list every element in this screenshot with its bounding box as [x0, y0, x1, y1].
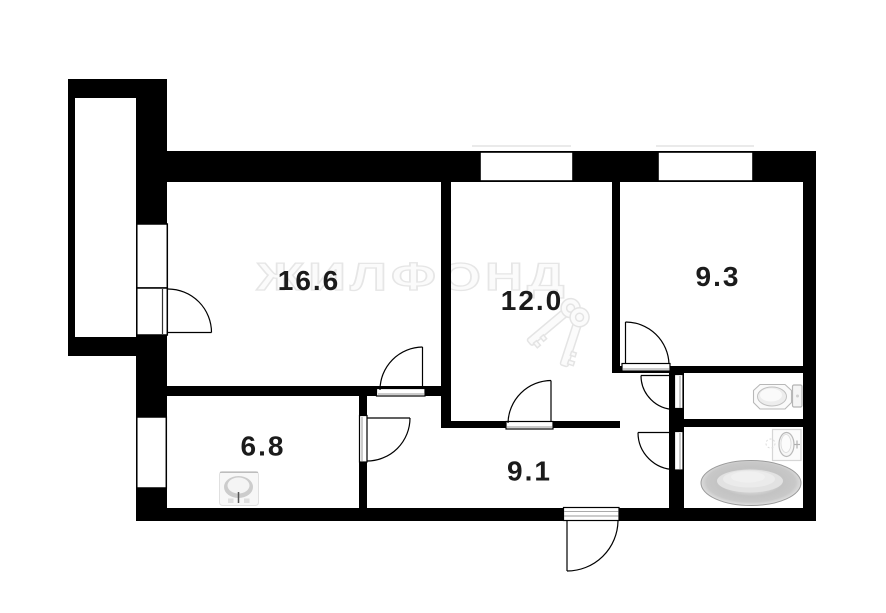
svg-text:12.0: 12.0 — [501, 285, 564, 316]
svg-text:9.1: 9.1 — [507, 456, 552, 487]
svg-text:6.8: 6.8 — [241, 431, 286, 462]
svg-text:16.6: 16.6 — [278, 265, 341, 296]
svg-text:9.3: 9.3 — [696, 261, 741, 292]
